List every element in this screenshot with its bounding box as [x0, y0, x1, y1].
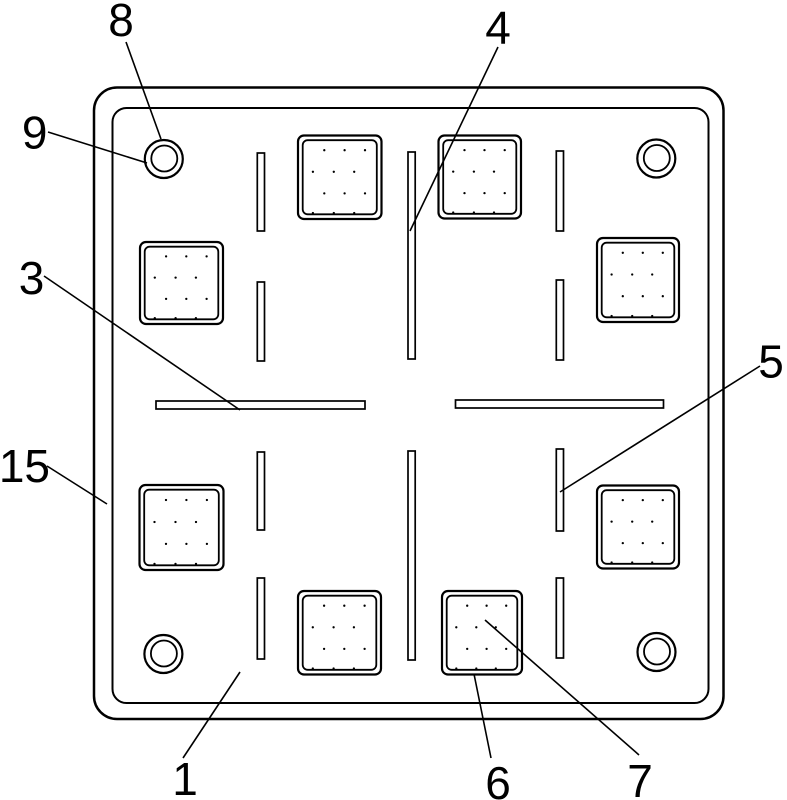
svg-text:6: 6 [485, 757, 511, 800]
svg-text:15: 15 [0, 440, 50, 492]
svg-text:4: 4 [485, 1, 511, 53]
svg-text:9: 9 [22, 107, 48, 159]
svg-text:1: 1 [172, 753, 198, 800]
svg-text:5: 5 [758, 335, 784, 387]
svg-text:8: 8 [108, 0, 134, 46]
svg-text:3: 3 [19, 252, 45, 304]
svg-text:7: 7 [627, 755, 653, 800]
